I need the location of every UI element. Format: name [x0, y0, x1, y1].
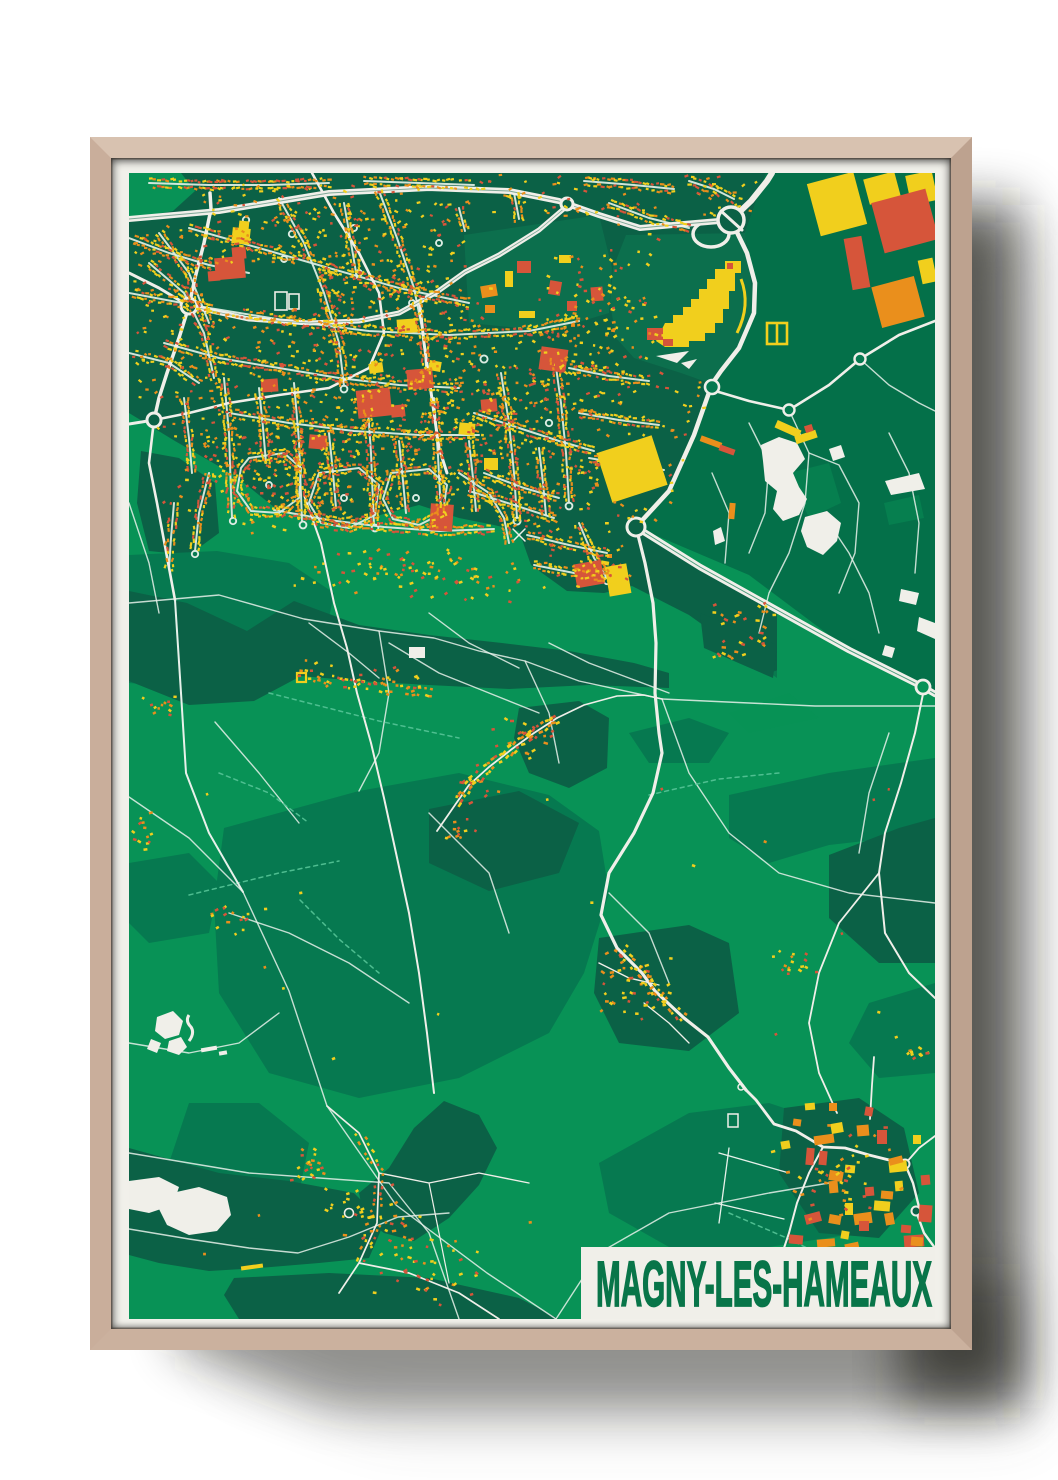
- svg-text:MAGNY-LES-HAMEAUX: MAGNY-LES-HAMEAUX: [596, 1248, 932, 1319]
